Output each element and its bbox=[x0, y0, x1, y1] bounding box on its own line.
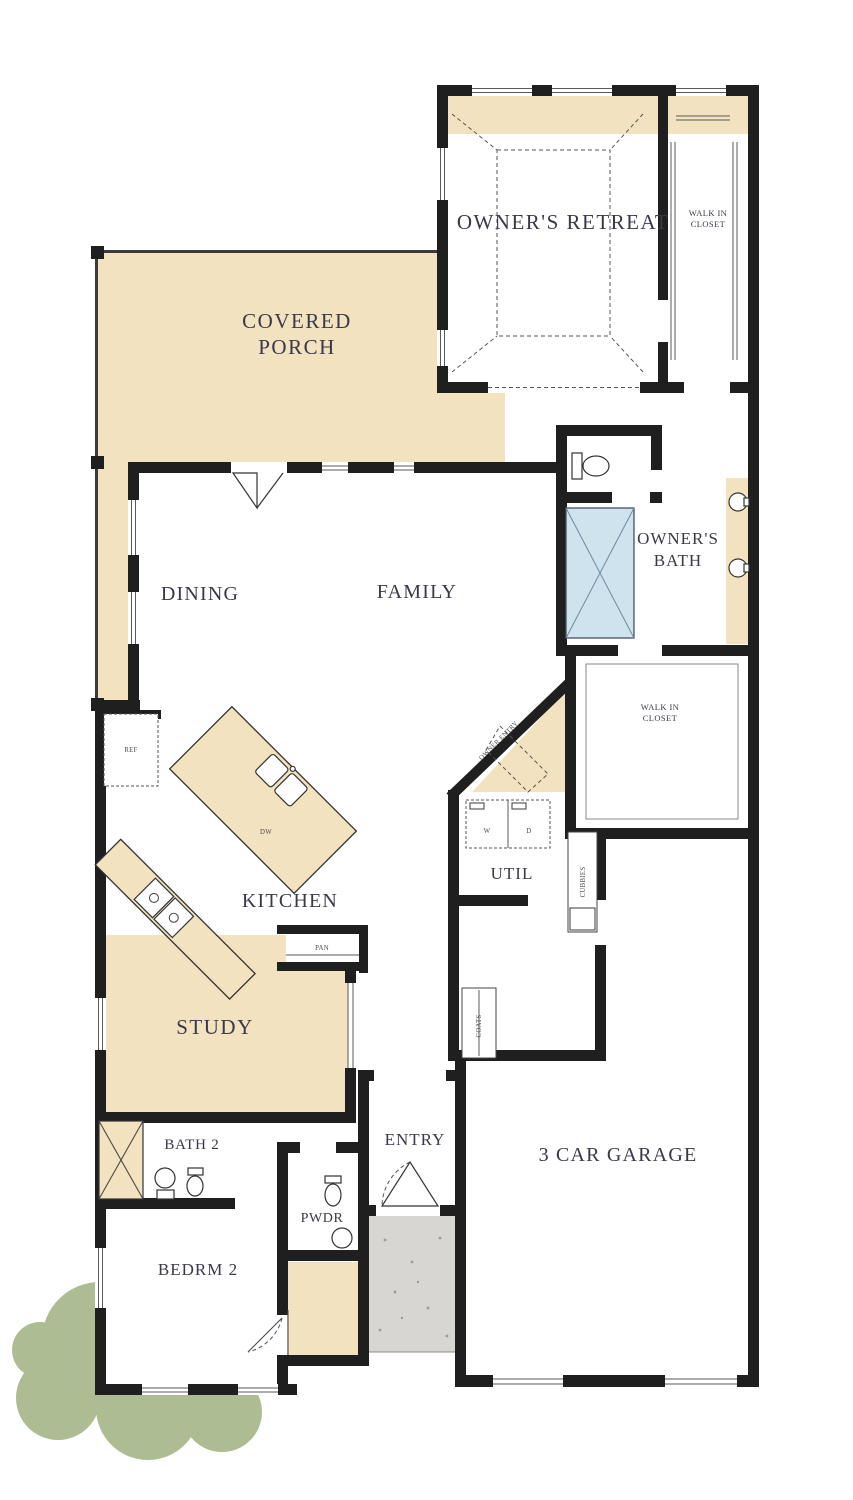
room-label-owners-closet-2: CLOSET bbox=[691, 219, 726, 229]
front-stoop bbox=[368, 1215, 460, 1352]
room-label-owners-bath-1: OWNER'S bbox=[637, 529, 719, 548]
bath2-sink bbox=[155, 1168, 175, 1199]
floor-plan-page: OWNER'S RETREAT WALK IN CLOSET COVERED P… bbox=[0, 0, 853, 1500]
room-label-owners-retreat: OWNER'S RETREAT bbox=[457, 210, 669, 234]
room-label-mid-closet-2: CLOSET bbox=[643, 713, 678, 723]
room-label-mid-closet-1: WALK IN bbox=[641, 702, 679, 712]
room-label-study: STUDY bbox=[176, 1015, 254, 1039]
fixture-label-coats: COATS bbox=[476, 1014, 483, 1037]
fixture-label-pan: PAN bbox=[315, 945, 329, 952]
room-label-bedrm2: BEDRM 2 bbox=[158, 1260, 238, 1279]
fixture-label-washer: W bbox=[484, 828, 491, 835]
fixture-label-dryer: D bbox=[526, 828, 531, 835]
room-label-dining: DINING bbox=[161, 583, 239, 605]
room-label-util: UTIL bbox=[491, 864, 534, 883]
room-label-owners-closet-1: WALK IN bbox=[689, 208, 727, 218]
room-label-kitchen: KITCHEN bbox=[242, 890, 338, 912]
bath2-tub bbox=[99, 1121, 143, 1199]
fixture-label-cubbies: CUBBIES bbox=[580, 867, 587, 898]
pwdr-toilet bbox=[325, 1176, 341, 1206]
room-label-entry: ENTRY bbox=[385, 1130, 446, 1149]
room-label-garage: 3 CAR GARAGE bbox=[539, 1144, 698, 1166]
fixture-label-ref: REF bbox=[124, 747, 137, 754]
room-label-porch-2: PORCH bbox=[258, 335, 336, 359]
room-label-owners-bath-2: BATH bbox=[654, 551, 702, 570]
pwdr-sink bbox=[332, 1228, 352, 1248]
owners-bath-shower bbox=[566, 508, 634, 638]
owners-retreat-headwall-band bbox=[447, 96, 748, 134]
room-label-bath2: BATH 2 bbox=[164, 1137, 219, 1153]
floor-plan-drawing: OWNER'S RETREAT WALK IN CLOSET COVERED P… bbox=[0, 0, 853, 1500]
washer-dryer bbox=[466, 800, 550, 848]
room-label-porch-1: COVERED bbox=[242, 309, 352, 333]
bath2-toilet bbox=[187, 1168, 203, 1196]
room-label-family: FAMILY bbox=[377, 581, 457, 603]
room-label-pwdr: PWDR bbox=[301, 1211, 344, 1226]
fixture-label-dw: DW bbox=[260, 829, 272, 836]
bedrm2-closet-floor bbox=[287, 1262, 358, 1355]
